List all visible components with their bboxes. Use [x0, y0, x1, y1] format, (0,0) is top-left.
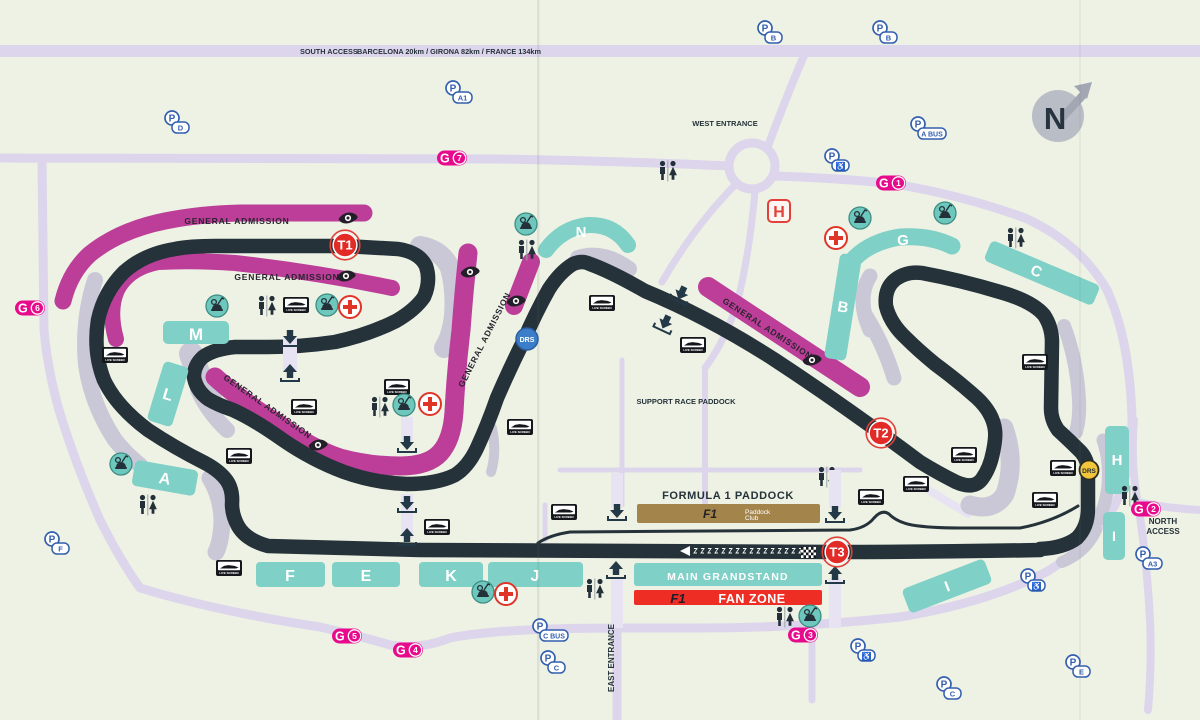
svg-text:C: C — [950, 690, 956, 699]
svg-text:♿: ♿ — [1032, 581, 1042, 591]
svg-text:G: G — [897, 232, 909, 249]
svg-text:4: 4 — [413, 645, 418, 655]
svg-text:F: F — [285, 568, 295, 585]
svg-text:D: D — [178, 124, 184, 133]
svg-text:E: E — [361, 568, 372, 585]
svg-text:2: 2 — [1151, 504, 1156, 514]
svg-text:FORMULA 1 PADDOCK: FORMULA 1 PADDOCK — [662, 490, 794, 502]
svg-text:FAN ZONE: FAN ZONE — [718, 592, 785, 606]
svg-text:5: 5 — [352, 631, 357, 641]
svg-text:F1: F1 — [703, 507, 717, 521]
svg-text:I: I — [1112, 528, 1116, 544]
svg-text:M: M — [189, 325, 203, 344]
svg-text:C: C — [554, 664, 560, 673]
svg-text:DRS: DRS — [1082, 468, 1096, 475]
svg-text:F1: F1 — [670, 591, 685, 606]
svg-text:WEST ENTRANCE: WEST ENTRANCE — [692, 119, 757, 128]
svg-text:B: B — [771, 34, 777, 43]
svg-text:A3: A3 — [1148, 560, 1158, 569]
svg-text:H: H — [1112, 452, 1123, 469]
svg-text:GENERAL ADMISSION: GENERAL ADMISSION — [234, 272, 339, 282]
svg-text:7: 7 — [457, 153, 462, 163]
svg-text:B: B — [886, 34, 892, 43]
svg-text:F: F — [58, 545, 63, 554]
svg-text:MAIN GRANDSTAND: MAIN GRANDSTAND — [667, 571, 789, 583]
svg-text:GENERAL ADMISSION: GENERAL ADMISSION — [184, 216, 289, 226]
svg-text:6: 6 — [35, 303, 40, 313]
svg-text:SUPPORT RACE PADDOCK: SUPPORT RACE PADDOCK — [636, 397, 736, 406]
svg-text:T1: T1 — [337, 238, 352, 253]
svg-text:NORTH: NORTH — [1149, 517, 1178, 526]
svg-text:C BUS: C BUS — [543, 634, 565, 641]
svg-text:A1: A1 — [458, 94, 468, 103]
svg-text:EAST ENTRANCE: EAST ENTRANCE — [607, 623, 616, 692]
svg-text:K: K — [445, 568, 457, 585]
svg-text:T2: T2 — [873, 426, 888, 441]
svg-text:N: N — [1044, 101, 1066, 136]
svg-text:H: H — [773, 204, 785, 221]
svg-text:3: 3 — [808, 630, 813, 640]
svg-text:ACCESS: ACCESS — [1146, 527, 1180, 536]
svg-text:N: N — [576, 224, 587, 241]
svg-text:♿: ♿ — [836, 161, 846, 171]
svg-text:♿: ♿ — [862, 651, 872, 661]
svg-text:DRS: DRS — [520, 337, 535, 344]
svg-text:Club: Club — [745, 515, 759, 522]
svg-text:1: 1 — [896, 178, 901, 188]
svg-text:T3: T3 — [829, 545, 844, 560]
svg-text:SOUTH ACCESS: SOUTH ACCESS — [300, 47, 358, 56]
svg-text:A BUS: A BUS — [921, 132, 943, 139]
svg-text:BARCELONA 20km / GIRONA 82km /: BARCELONA 20km / GIRONA 82km / FRANCE 13… — [357, 47, 541, 56]
